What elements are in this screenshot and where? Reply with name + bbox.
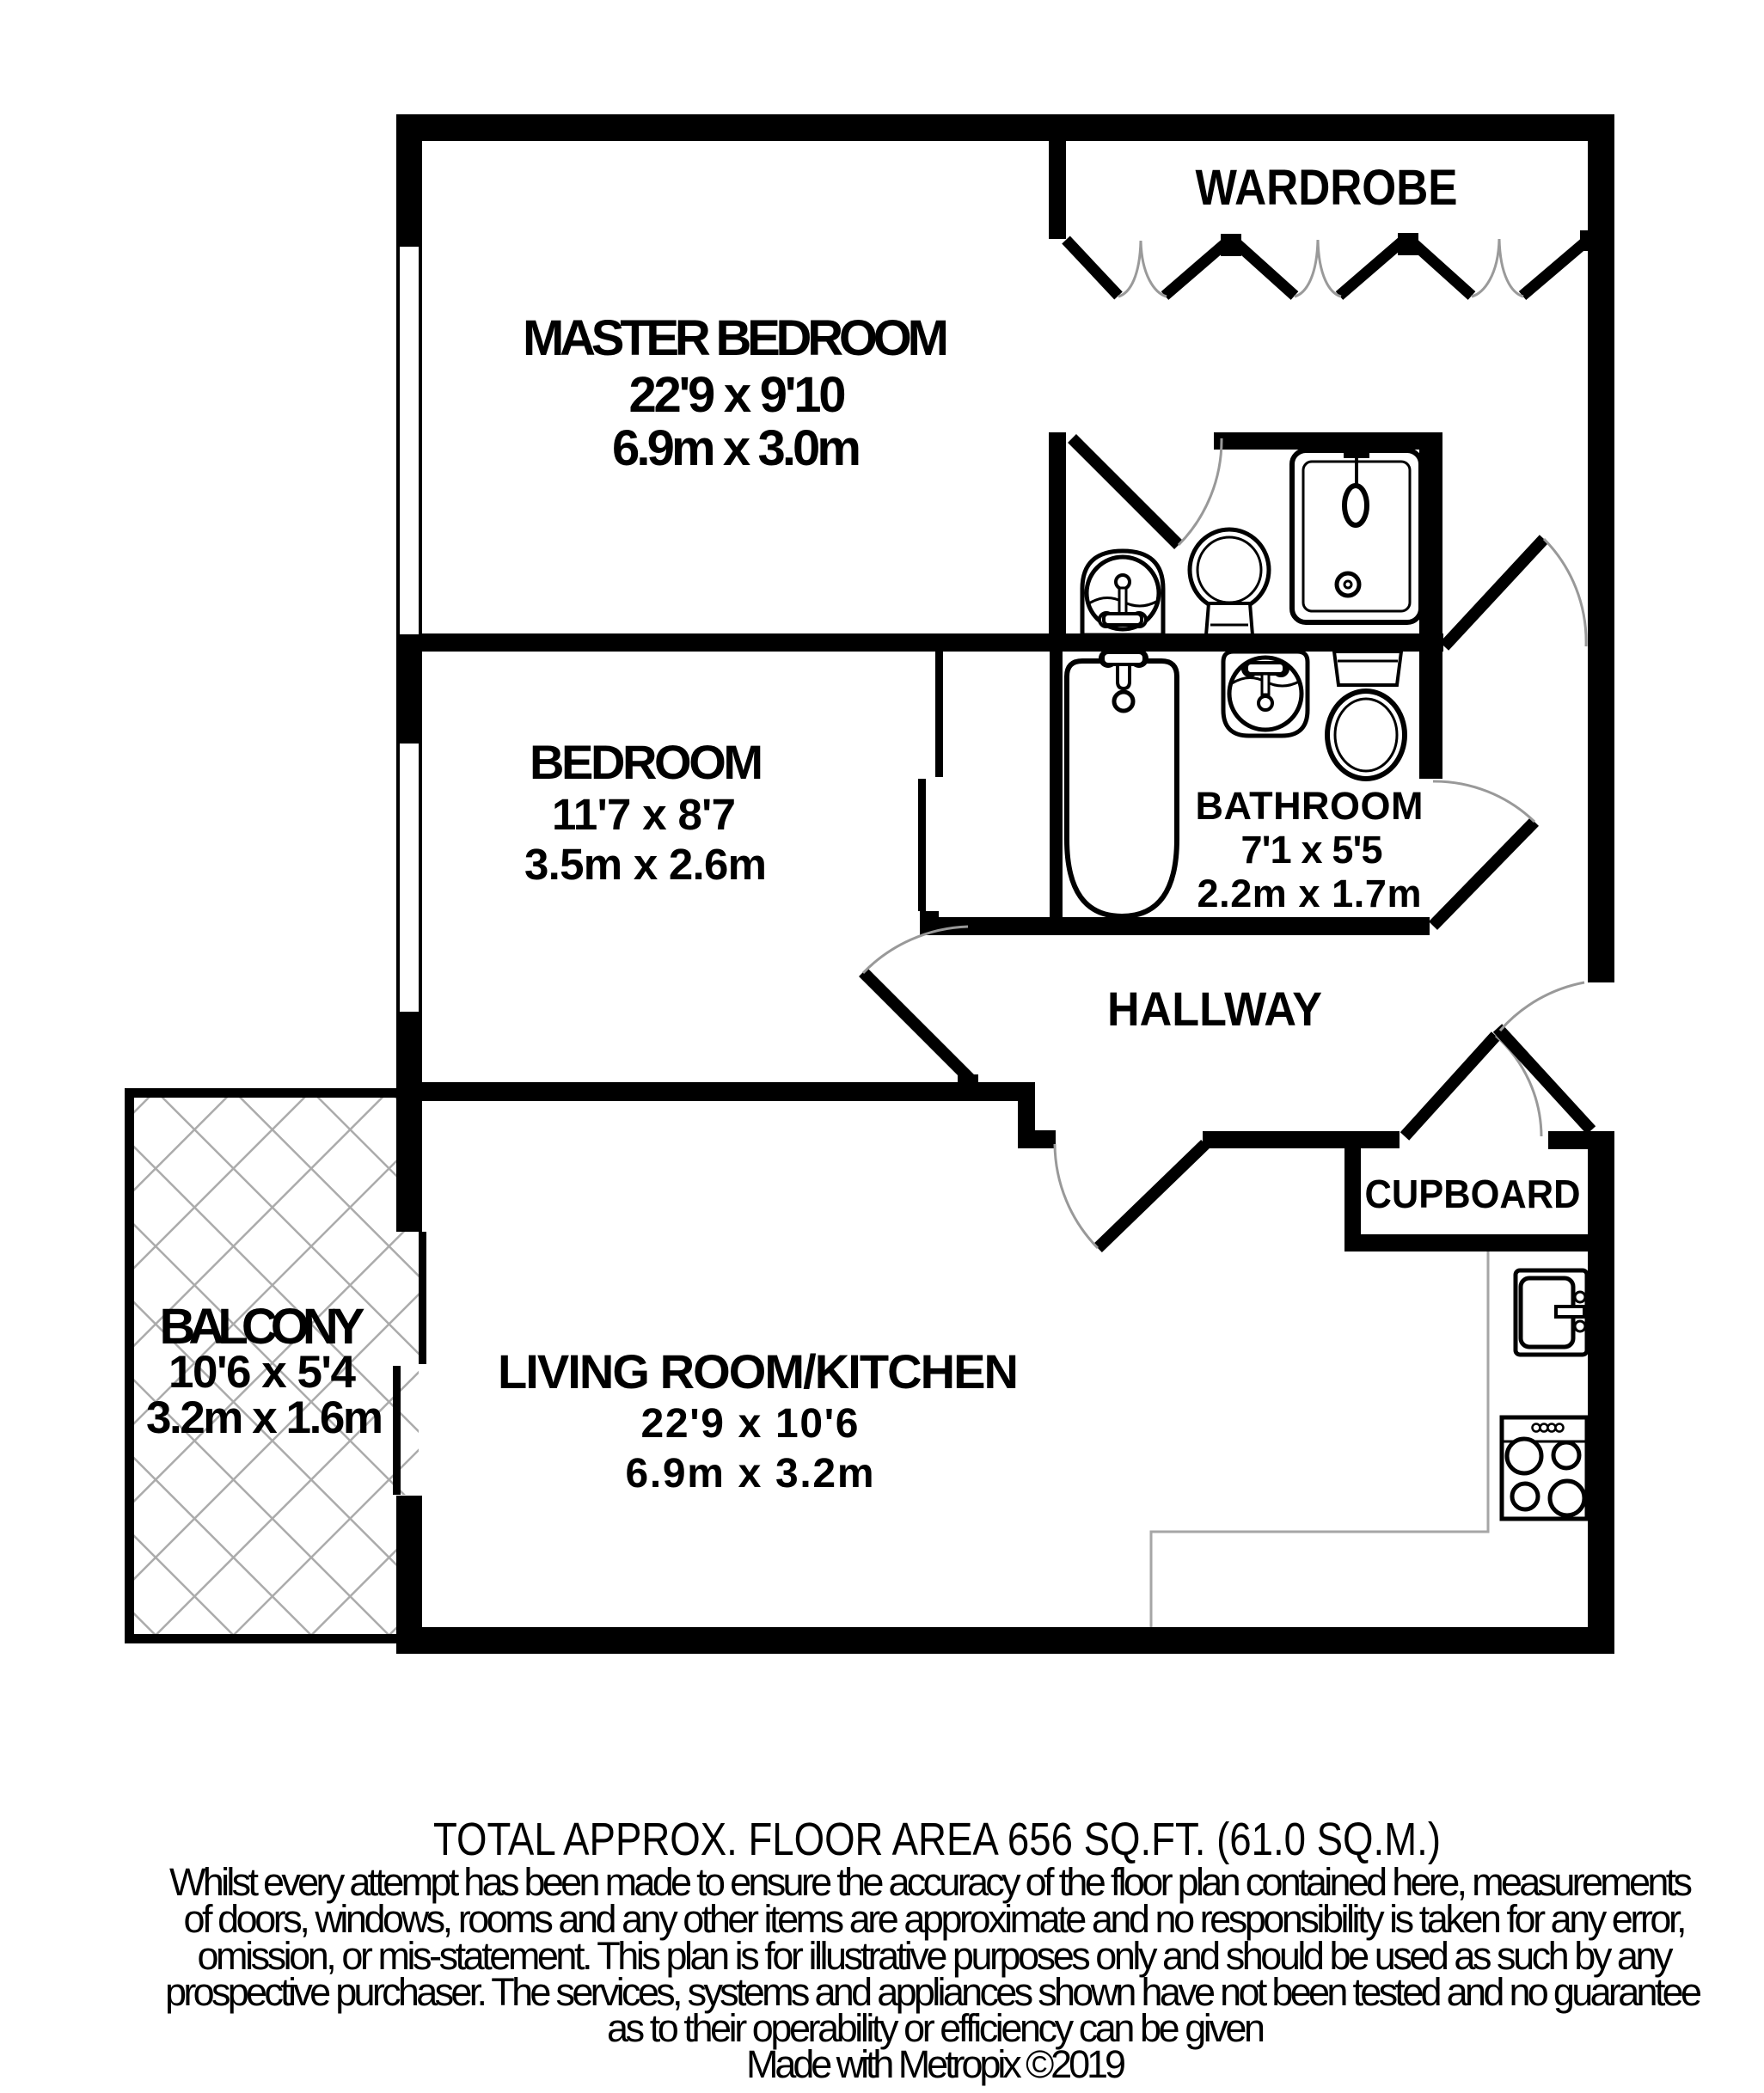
svg-text:2.2m x 1.7m: 2.2m x 1.7m (1197, 872, 1422, 915)
svg-text:22'9 x 10'6: 22'9 x 10'6 (641, 1401, 859, 1447)
svg-text:6.9m x 3.0m: 6.9m x 3.0m (612, 420, 861, 476)
svg-text:11'7 x 8'7: 11'7 x 8'7 (552, 790, 736, 839)
svg-text:WARDROBE: WARDROBE (1196, 160, 1458, 216)
svg-text:6.9m x 3.2m: 6.9m x 3.2m (626, 1451, 874, 1496)
svg-text:10'6 x 5'4: 10'6 x 5'4 (168, 1347, 357, 1398)
svg-text:MASTER BEDROOM: MASTER BEDROOM (523, 310, 949, 366)
svg-text:CUPBOARD: CUPBOARD (1365, 1172, 1581, 1216)
svg-text:22'9 x 9'10: 22'9 x 9'10 (629, 367, 847, 423)
svg-text:7'1 x 5'5: 7'1 x 5'5 (1241, 828, 1383, 872)
svg-text:HALLWAY: HALLWAY (1107, 982, 1322, 1036)
svg-text:TOTAL APPROX. FLOOR AREA 656 S: TOTAL APPROX. FLOOR AREA 656 SQ.FT. (61.… (433, 1814, 1441, 1865)
svg-text:3.2m x 1.6m: 3.2m x 1.6m (146, 1392, 383, 1443)
svg-text:BATHROOM: BATHROOM (1196, 784, 1424, 828)
svg-text:Made with Metropix ©2019: Made with Metropix ©2019 (746, 2042, 1126, 2086)
svg-text:BEDROOM: BEDROOM (530, 735, 763, 789)
svg-text:3.5m x 2.6m: 3.5m x 2.6m (524, 840, 767, 889)
svg-text:LIVING ROOM/KITCHEN: LIVING ROOM/KITCHEN (498, 1344, 1019, 1398)
